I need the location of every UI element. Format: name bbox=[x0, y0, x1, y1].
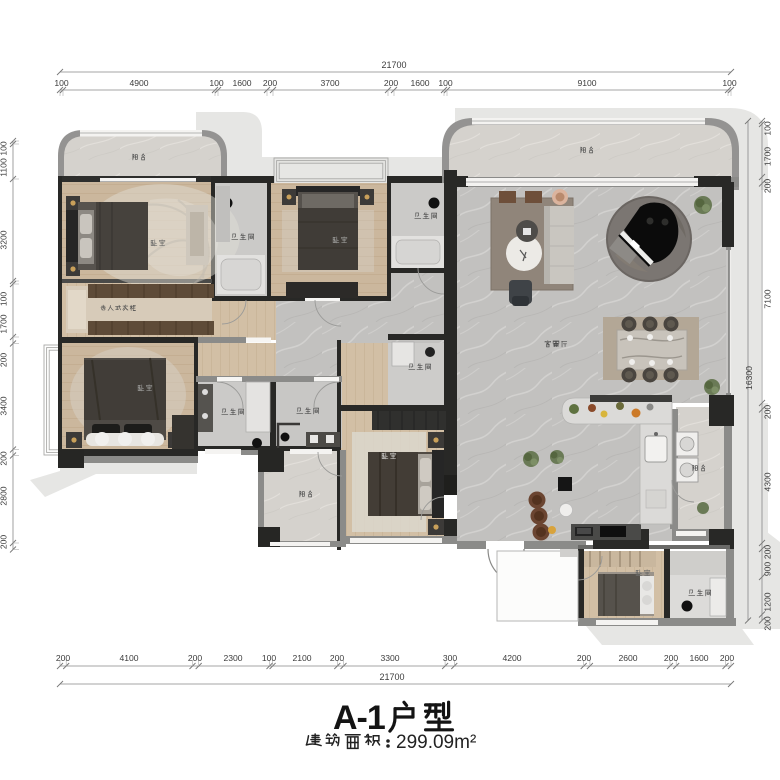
svg-text:200: 200 bbox=[577, 653, 592, 663]
svg-text:4100: 4100 bbox=[119, 653, 138, 663]
svg-text:3400: 3400 bbox=[0, 396, 9, 415]
svg-text:200: 200 bbox=[0, 535, 9, 550]
svg-text:21700: 21700 bbox=[381, 60, 406, 70]
svg-text:100: 100 bbox=[438, 78, 453, 88]
svg-text:200: 200 bbox=[664, 653, 679, 663]
svg-text:1200: 1200 bbox=[763, 592, 773, 611]
svg-text:200: 200 bbox=[763, 405, 773, 420]
svg-text:200: 200 bbox=[384, 78, 399, 88]
svg-text:200: 200 bbox=[763, 545, 773, 560]
svg-text:100: 100 bbox=[722, 78, 737, 88]
svg-text:2600: 2600 bbox=[618, 653, 637, 663]
svg-text:200: 200 bbox=[56, 653, 71, 663]
svg-text:A-1: A-1 bbox=[333, 699, 385, 737]
svg-text:3700: 3700 bbox=[320, 78, 339, 88]
svg-text:200: 200 bbox=[720, 653, 735, 663]
svg-text:200: 200 bbox=[0, 353, 9, 368]
svg-text:21700: 21700 bbox=[379, 672, 404, 682]
svg-text:300: 300 bbox=[443, 653, 458, 663]
svg-text:2300: 2300 bbox=[223, 653, 242, 663]
svg-text:200: 200 bbox=[763, 179, 773, 194]
svg-text:100: 100 bbox=[54, 78, 69, 88]
svg-text:3300: 3300 bbox=[380, 653, 399, 663]
svg-text:100: 100 bbox=[209, 78, 224, 88]
svg-text:1700: 1700 bbox=[763, 147, 773, 166]
svg-text:1600: 1600 bbox=[410, 78, 429, 88]
svg-text:2100: 2100 bbox=[292, 653, 311, 663]
svg-text:200: 200 bbox=[330, 653, 345, 663]
svg-text:16300: 16300 bbox=[744, 366, 754, 390]
svg-text:9100: 9100 bbox=[577, 78, 596, 88]
svg-text:7100: 7100 bbox=[763, 289, 773, 308]
svg-text:200: 200 bbox=[0, 451, 9, 466]
svg-text:4300: 4300 bbox=[763, 472, 773, 491]
svg-text:200: 200 bbox=[188, 653, 203, 663]
svg-text:200: 200 bbox=[763, 616, 773, 631]
svg-text:299.09m²: 299.09m² bbox=[396, 732, 476, 753]
svg-text:4900: 4900 bbox=[129, 78, 148, 88]
svg-text:4200: 4200 bbox=[502, 653, 521, 663]
svg-text:100: 100 bbox=[0, 141, 9, 156]
svg-text:1100: 1100 bbox=[0, 158, 9, 177]
svg-text:3200: 3200 bbox=[0, 230, 9, 249]
svg-text:100: 100 bbox=[262, 653, 277, 663]
svg-text:1600: 1600 bbox=[689, 653, 708, 663]
svg-text:1600: 1600 bbox=[232, 78, 251, 88]
svg-text:900: 900 bbox=[763, 562, 773, 577]
svg-text:200: 200 bbox=[263, 78, 278, 88]
svg-text:1700: 1700 bbox=[0, 314, 9, 333]
svg-text:100: 100 bbox=[763, 121, 773, 136]
svg-text:100: 100 bbox=[0, 292, 9, 307]
svg-text:2800: 2800 bbox=[0, 486, 9, 505]
